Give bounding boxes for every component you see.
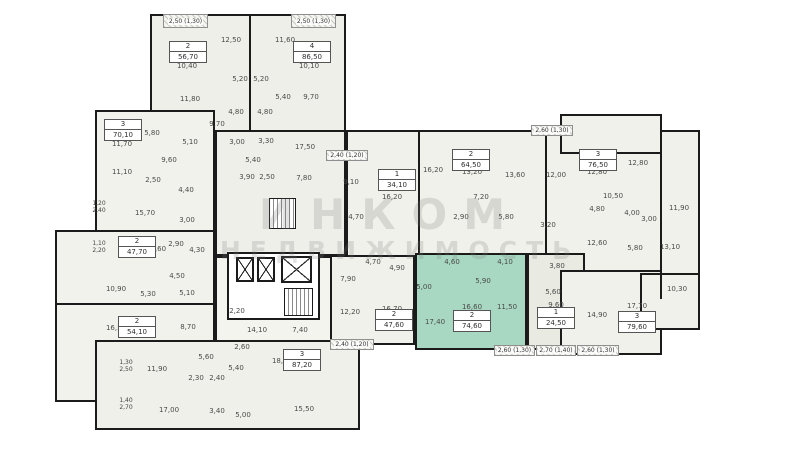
balcony: 2,60 (1,30)	[494, 345, 535, 356]
balcony-area-label: 2,50 (1,30)	[168, 18, 203, 25]
apartment-room-count: 2	[119, 317, 155, 327]
room-area-label: 2,30	[188, 374, 204, 382]
room-area-label: 16,20	[423, 166, 443, 174]
room-area-label: 17,40	[425, 318, 445, 326]
room-area-label: 3,00	[641, 215, 657, 223]
room-area-label: 5,40	[228, 364, 244, 372]
room-area-label: 11,90	[669, 204, 689, 212]
room-area-label: 13,60	[505, 171, 525, 179]
room-area-label: 10,90	[106, 285, 126, 293]
apartment-unit-label[interactable]: 376,50	[579, 149, 617, 171]
tower-mid	[215, 130, 346, 256]
balcony-area-label: 2,60 (1,30)	[497, 347, 532, 354]
apartment-area: 24,50	[538, 318, 574, 328]
apartment-area: 47,70	[119, 247, 155, 257]
balcony: 2,50 (1,30)	[163, 14, 208, 28]
apartment-unit-label[interactable]: 134,10	[378, 169, 416, 191]
balcony: 2,60 (1,30)	[531, 125, 573, 136]
balcony-area-label: 2,60 (1,30)	[534, 127, 569, 134]
room-area-label: 4,30	[189, 246, 205, 254]
room-area-label: 2,50	[259, 173, 275, 181]
room-area-label: 10,10	[299, 62, 319, 70]
room-area-label: 2,90	[168, 240, 184, 248]
balcony-area-label: 2,40 (1,20)	[329, 152, 364, 159]
room-area-label: 5,00	[235, 411, 251, 419]
room-area-label: 5,80	[144, 129, 160, 137]
room-area-label: 7,20	[473, 193, 489, 201]
room-area-label: 12,60	[587, 239, 607, 247]
apartment-room-count: 2	[170, 42, 206, 52]
right-top-block	[560, 114, 662, 154]
room-area-label: 9,70	[303, 93, 319, 101]
edge-label-line1: 1,30	[119, 359, 132, 366]
apartment-room-count: 1	[538, 308, 574, 318]
interior-wall	[249, 14, 251, 132]
balcony: 2,40 (1,20)	[326, 150, 368, 161]
floor-plan: 2,50 (1,30)2,50 (1,30)2,60 (1,30)2,40 (1…	[0, 0, 800, 450]
room-area-label: 13,10	[660, 243, 680, 251]
elevator-shaft-icon	[281, 256, 312, 283]
room-area-label: 2,60	[234, 343, 250, 351]
apartment-unit-label[interactable]: 256,70	[169, 41, 207, 63]
room-area-label: 4,00	[624, 209, 640, 217]
apartment-room-count: 3	[619, 312, 655, 322]
room-area-label: 4,10	[497, 258, 513, 266]
room-area-label: 5,20	[253, 75, 269, 83]
unit-selected-block	[415, 253, 527, 350]
balcony: 2,50 (1,30)	[291, 14, 336, 28]
room-area-label: 2,40	[209, 374, 225, 382]
apartment-room-count: 3	[284, 350, 320, 360]
balcony-edge-label: 1,102,20	[92, 240, 105, 254]
room-area-label: 4,60	[444, 258, 460, 266]
room-area-label: 3,20	[540, 221, 556, 229]
room-area-label: 4,70	[348, 213, 364, 221]
interior-wall	[57, 303, 215, 305]
apartment-area: 54,10	[119, 327, 155, 337]
room-area-label: 17,70	[627, 302, 647, 310]
room-area-label: 5,90	[475, 277, 491, 285]
balcony: 2,40 (1,20)	[330, 339, 374, 350]
apartment-room-count: 3	[105, 120, 141, 130]
apartment-area: 79,60	[619, 322, 655, 332]
room-area-label: 14,10	[247, 326, 267, 334]
edge-label-line2: 2,20	[92, 247, 105, 254]
edge-label-line1: 1,20	[92, 200, 105, 207]
room-area-label: 9,10	[343, 178, 359, 186]
apartment-area: 34,10	[379, 180, 415, 190]
apartment-unit-label[interactable]: 370,10	[104, 119, 142, 141]
apartment-area: 70,10	[105, 130, 141, 140]
edge-label-line1: 1,10	[92, 240, 105, 247]
staircase-icon	[269, 198, 296, 229]
room-area-label: 5,10	[182, 138, 198, 146]
room-area-label: 7,40	[292, 326, 308, 334]
room-area-label: 5,80	[627, 244, 643, 252]
balcony-area-label: 2,60 (1,30)	[580, 347, 615, 354]
room-area-label: 12,20	[340, 308, 360, 316]
room-area-label: 8,70	[180, 323, 196, 331]
room-area-label: 10,30	[667, 285, 687, 293]
room-area-label: 9,70	[209, 120, 225, 128]
room-area-label: 2,90	[453, 213, 469, 221]
balcony-edge-label: 1,302,50	[119, 359, 132, 373]
room-area-label: 11,80	[180, 95, 200, 103]
elevator-shaft-icon	[236, 257, 254, 282]
room-area-label: 5,30	[140, 290, 156, 298]
apartment-room-count: 1	[379, 170, 415, 180]
balcony-area-label: 2,70 (1,40)	[538, 347, 573, 354]
room-area-label: 5,40	[275, 93, 291, 101]
room-area-label: 2,50	[145, 176, 161, 184]
balcony-edge-label: 1,202,40	[92, 200, 105, 214]
room-area-label: 5,40	[245, 156, 261, 164]
room-area-label: 4,80	[589, 205, 605, 213]
edge-label-line1: 1,40	[119, 397, 132, 404]
room-area-label: 11,70	[112, 140, 132, 148]
room-area-label: 7,90	[340, 275, 356, 283]
room-area-label: 4,80	[257, 108, 273, 116]
apartment-unit-label[interactable]: 387,20	[283, 349, 321, 371]
room-area-label: 4,80	[228, 108, 244, 116]
room-area-label: 7,80	[296, 174, 312, 182]
apartment-unit-label[interactable]: 264,50	[452, 149, 490, 171]
room-area-label: 17,00	[159, 406, 179, 414]
room-area-label: 11,50	[497, 303, 517, 311]
room-area-label: 16,20	[382, 193, 402, 201]
balcony: 2,60 (1,30)	[577, 345, 619, 356]
balcony: 2,70 (1,40)	[536, 345, 576, 356]
apartment-area: 87,20	[284, 360, 320, 370]
room-area-label: 5,20	[232, 75, 248, 83]
room-area-label: 12,00	[546, 171, 566, 179]
apartment-unit-label[interactable]: 486,50	[293, 41, 331, 63]
room-area-label: 5,60	[198, 353, 214, 361]
apartment-unit-label[interactable]: 379,60	[618, 311, 656, 333]
apartment-room-count: 2	[119, 237, 155, 247]
apartment-area: 64,50	[453, 160, 489, 170]
apartment-area: 86,50	[294, 52, 330, 62]
apartment-room-count: 2	[454, 311, 490, 321]
interior-wall	[418, 131, 420, 255]
room-area-label: 2,20	[229, 307, 245, 315]
staircase-icon	[284, 288, 313, 316]
apartment-unit-label[interactable]: 124,50	[537, 307, 575, 329]
room-area-label: 3,80	[549, 262, 565, 270]
apartment-room-count: 2	[376, 310, 412, 320]
apartment-unit-label[interactable]: 254,10	[118, 316, 156, 338]
room-area-label: 12,50	[221, 36, 241, 44]
balcony-edge-label: 1,402,70	[119, 397, 132, 411]
apartment-area: 47,60	[376, 320, 412, 330]
room-area-label: 10,50	[603, 192, 623, 200]
apartment-area: 56,70	[170, 52, 206, 62]
apartment-room-count: 4	[294, 42, 330, 52]
balcony-area-label: 2,40 (1,20)	[334, 341, 369, 348]
apartment-unit-label[interactable]: 247,70	[118, 236, 156, 258]
room-area-label: 5,60	[545, 288, 561, 296]
room-area-label: 4,90	[389, 264, 405, 272]
room-area-label: 14,90	[587, 311, 607, 319]
apartment-room-count: 2	[453, 150, 489, 160]
room-area-label: 11,90	[147, 365, 167, 373]
elevator-shaft-icon	[257, 257, 275, 282]
room-area-label: 3,90	[239, 173, 255, 181]
room-area-label: 4,40	[178, 186, 194, 194]
apartment-unit-label-selected[interactable]: 274,60	[453, 310, 491, 332]
room-area-label: 3,00	[229, 138, 245, 146]
edge-label-line2: 2,40	[92, 207, 105, 214]
edge-label-line2: 2,50	[119, 366, 132, 373]
room-area-label: 4,70	[365, 258, 381, 266]
room-area-label: 3,40	[209, 407, 225, 415]
room-area-label: 5,10	[179, 289, 195, 297]
room-area-label: 5,00	[416, 283, 432, 291]
room-area-label: 9,60	[161, 156, 177, 164]
room-area-label: 4,50	[169, 272, 185, 280]
room-area-label: 15,70	[135, 209, 155, 217]
apartment-room-count: 3	[580, 150, 616, 160]
room-area-label: 17,50	[295, 143, 315, 151]
room-area-label: 12,80	[628, 159, 648, 167]
room-area-label: 3,00	[179, 216, 195, 224]
interior-wall	[660, 131, 662, 299]
apartment-unit-label[interactable]: 247,60	[375, 309, 413, 331]
room-area-label: 15,50	[294, 405, 314, 413]
interior-wall	[545, 131, 547, 255]
apartment-area: 74,60	[454, 321, 490, 331]
room-area-label: 11,10	[112, 168, 132, 176]
edge-label-line2: 2,70	[119, 404, 132, 411]
room-area-label: 3,30	[258, 137, 274, 145]
balcony-area-label: 2,50 (1,30)	[296, 18, 331, 25]
room-area-label: 10,40	[177, 62, 197, 70]
apartment-area: 76,50	[580, 160, 616, 170]
room-area-label: 5,80	[498, 213, 514, 221]
